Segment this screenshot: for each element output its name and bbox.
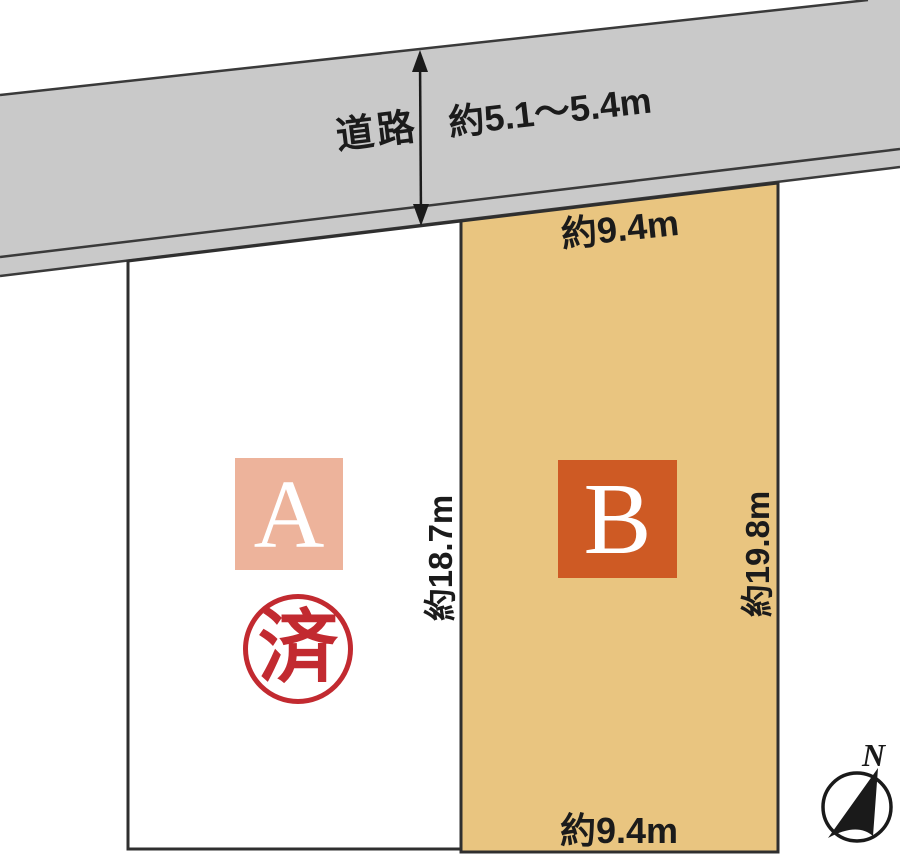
plot-b-badge: B <box>558 460 677 578</box>
compass: N <box>823 737 891 841</box>
sold-stamp: 済 <box>243 594 353 704</box>
compass-north-letter: N <box>861 737 887 773</box>
plot-a-depth-label: 約18.7m <box>423 482 459 634</box>
site-plan: N 道路 約5.1～5.4m 約9.4m 約18.7m 約19.8m 約9.4m… <box>0 0 900 855</box>
plot-a-badge: A <box>235 458 343 570</box>
plot-b-depth-label: 約19.8m <box>740 478 776 630</box>
plot-b-bottom-width-label: 約9.4m <box>553 812 685 850</box>
